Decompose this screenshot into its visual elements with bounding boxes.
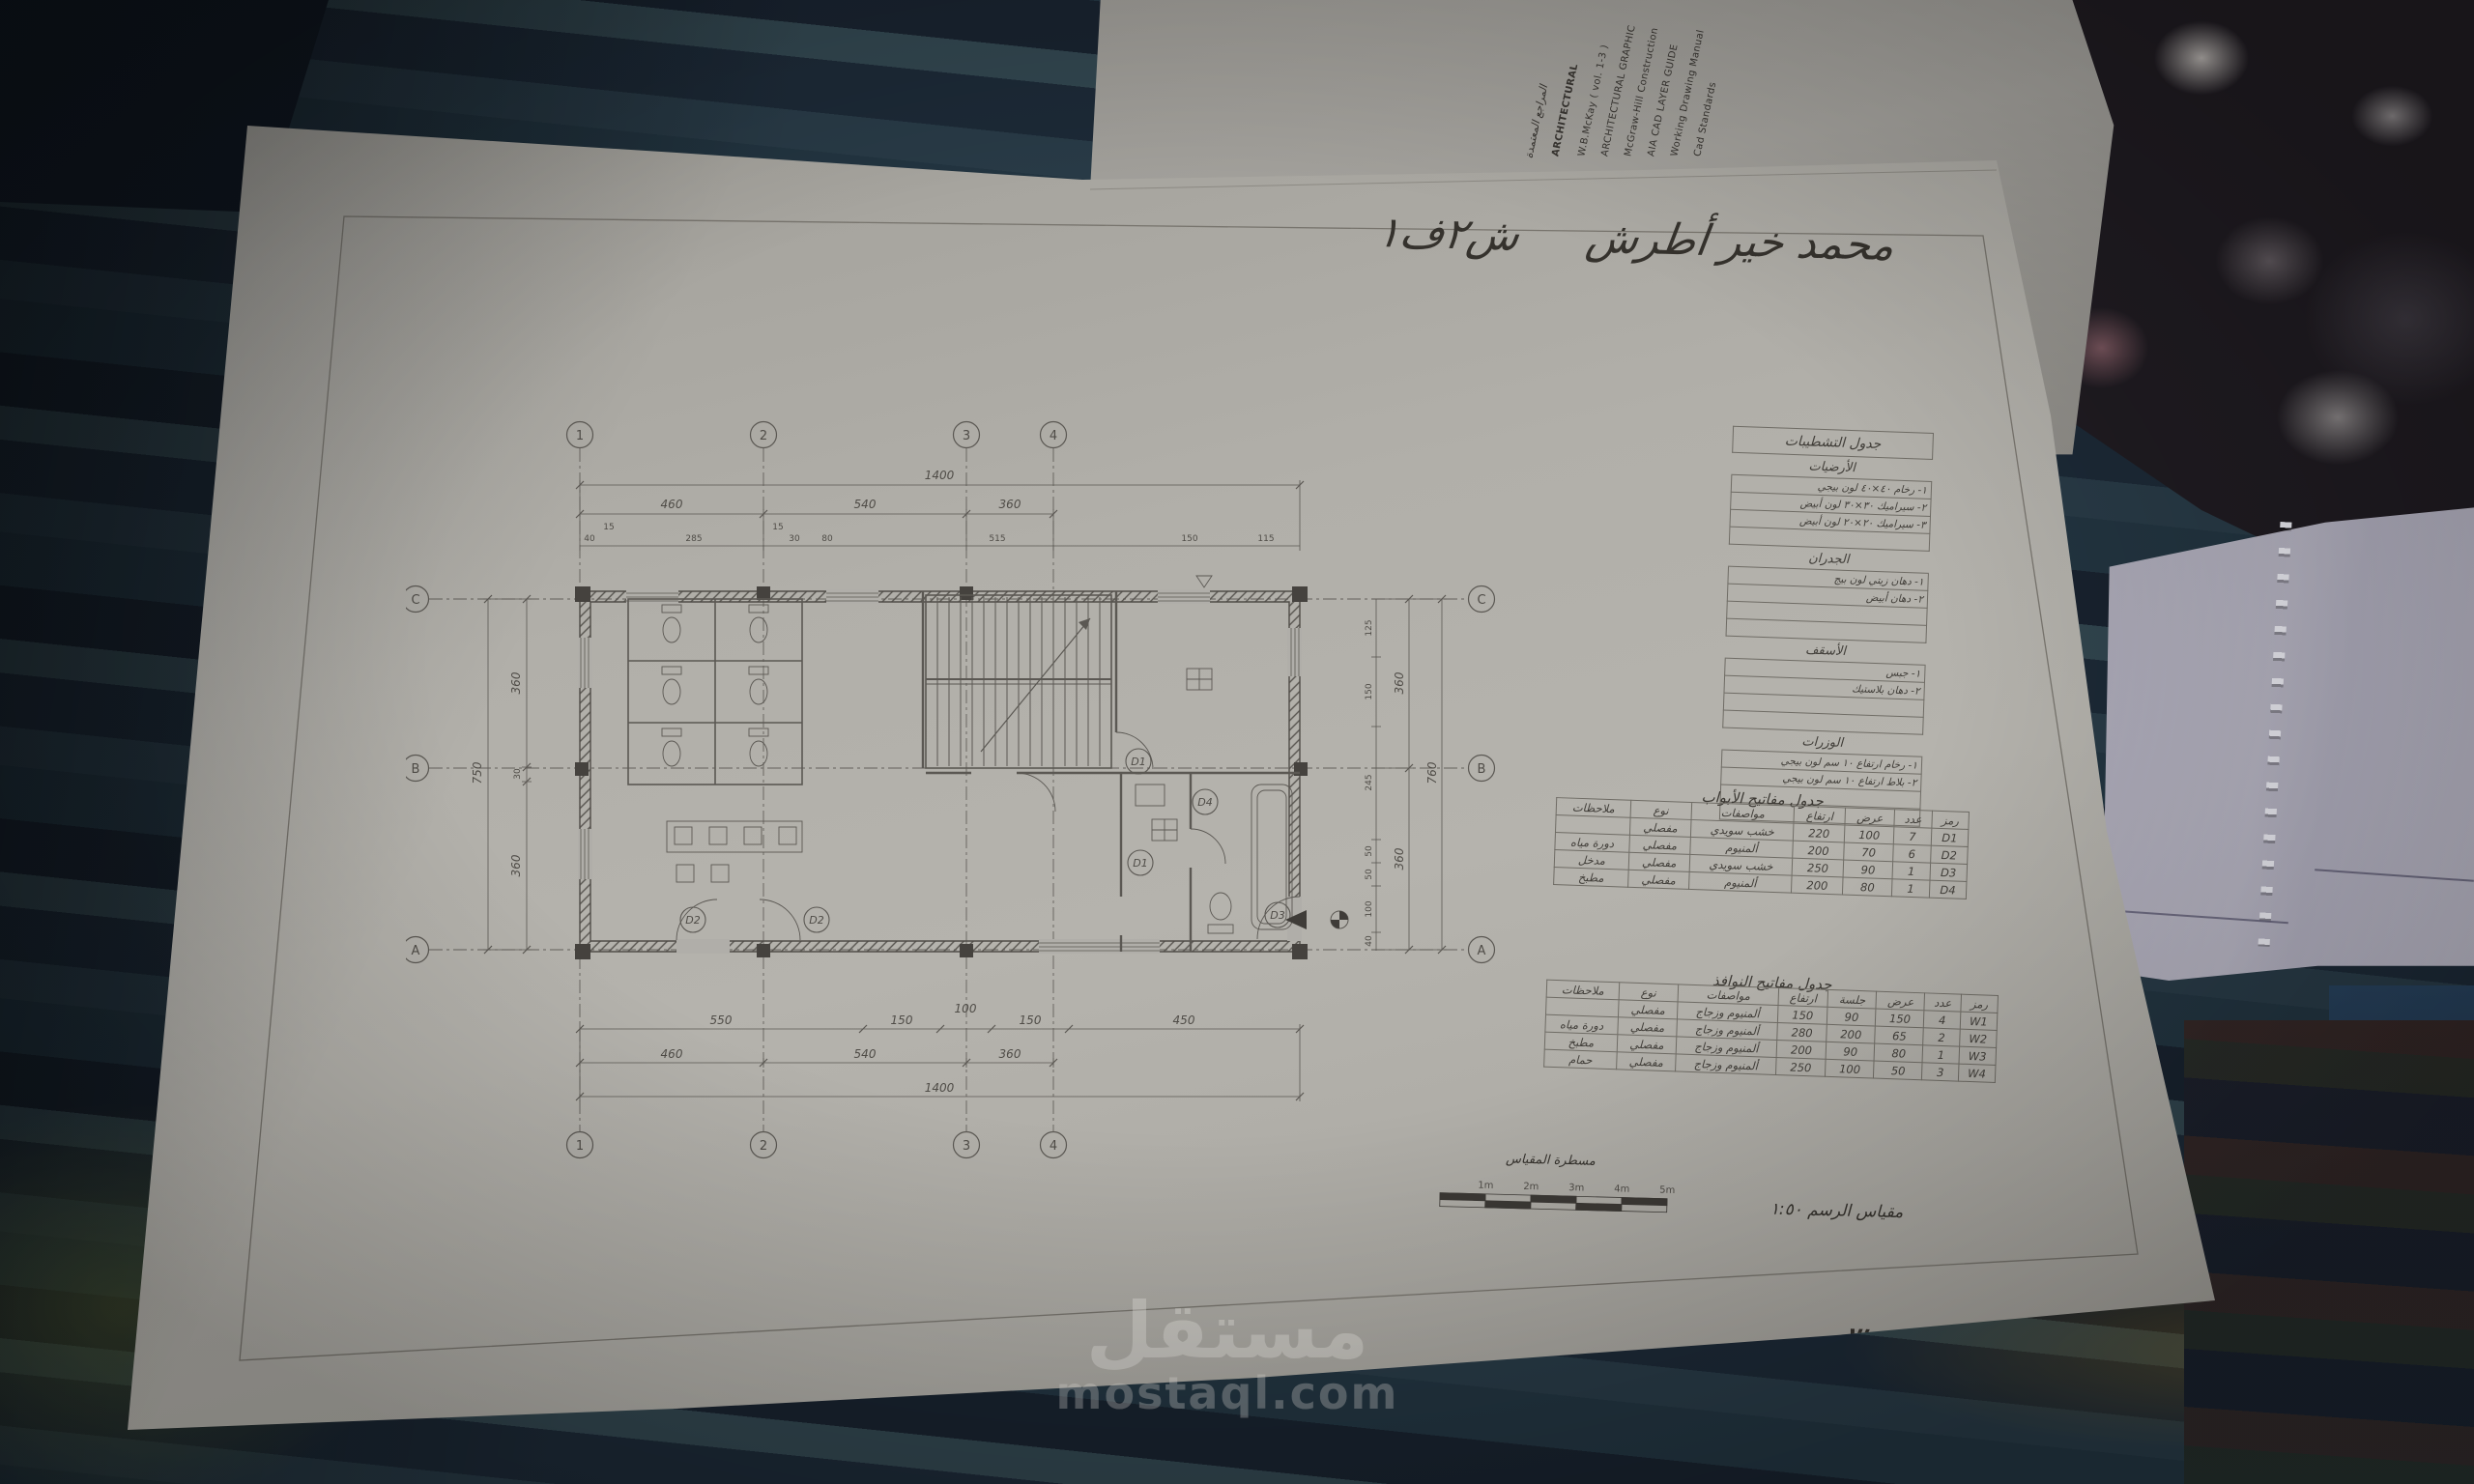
cell: مفصلي [1618, 1017, 1678, 1037]
cell: W2 [1959, 1029, 1997, 1047]
class-code: ش٢ف١ [1374, 208, 1522, 261]
exercise-label: تمرين ٣ [1838, 1317, 1978, 1369]
references-line: Cad Standards [1692, 81, 1718, 157]
svg-text:125: 125 [1365, 619, 1374, 636]
cell: 90 [1827, 1007, 1877, 1026]
svg-text:5m: 5m [1659, 1185, 1675, 1196]
cell: 1 [1892, 879, 1930, 898]
col-header: عرض [1845, 808, 1895, 827]
svg-text:D4: D4 [1197, 796, 1212, 809]
notebook-ruled-line [2114, 910, 2288, 925]
cell: 6 [1893, 844, 1931, 863]
plaid-fabric [2184, 1020, 2474, 1484]
wc-cubicles [628, 599, 802, 785]
svg-text:460: 460 [661, 498, 683, 511]
cell: 200 [1827, 1024, 1876, 1043]
window-openings [578, 589, 1302, 954]
svg-text:B: B [1478, 762, 1486, 777]
svg-text:D3: D3 [1270, 909, 1284, 922]
svg-text:360: 360 [509, 854, 523, 876]
svg-text:3m: 3m [1568, 1183, 1584, 1193]
cell: مفصلي [1629, 835, 1691, 854]
door-marks [680, 749, 1290, 932]
cell: مفصلي [1617, 1035, 1677, 1054]
references-line: المراجع المعتمدة [1522, 84, 1550, 159]
cell: 150 [1777, 1006, 1827, 1025]
svg-text:D2: D2 [809, 914, 823, 927]
svg-text:360: 360 [509, 671, 523, 694]
svg-text:4: 4 [1050, 429, 1057, 443]
cell: مفصلي [1627, 870, 1689, 889]
spiral-binding [2258, 522, 2291, 947]
svg-text:2m: 2m [1523, 1182, 1539, 1192]
svg-text:1400: 1400 [925, 469, 955, 482]
svg-text:540: 540 [854, 1047, 877, 1061]
svg-text:80: 80 [821, 534, 833, 544]
svg-text:3: 3 [963, 1139, 970, 1154]
author-name: محمد خير أطرش [1583, 214, 1897, 271]
svg-text:540: 540 [854, 498, 877, 511]
svg-text:1400: 1400 [925, 1081, 955, 1095]
grid-bubbles [406, 422, 1495, 1158]
cell: مفصلي [1629, 817, 1691, 837]
spiral-notebook [2102, 488, 2474, 981]
cell: 280 [1777, 1023, 1827, 1042]
col-header: رمز [1931, 811, 1969, 829]
cell: 200 [1793, 841, 1844, 860]
svg-text:245: 245 [1365, 774, 1374, 790]
svg-text:515: 515 [989, 534, 1005, 544]
svg-text:150: 150 [1181, 534, 1197, 544]
cell: مفصلي [1616, 1052, 1676, 1071]
svg-text:4: 4 [1050, 1139, 1057, 1154]
cell: 90 [1826, 1042, 1875, 1061]
svg-text:460: 460 [661, 1047, 683, 1061]
cell: W3 [1959, 1046, 1997, 1065]
cell: 150 [1876, 1009, 1925, 1028]
cell: 220 [1794, 823, 1845, 842]
cell: 50 [1874, 1061, 1923, 1080]
floor-plan: 12 34 12 34 CBA CBA 1400 460 540 360 40 … [406, 406, 1527, 1179]
cell: مطبخ [1554, 868, 1628, 888]
svg-text:2: 2 [760, 429, 767, 443]
svg-text:550: 550 [710, 1013, 733, 1027]
svg-text:760: 760 [1425, 761, 1439, 784]
svg-text:40: 40 [1365, 935, 1374, 947]
svg-text:750: 750 [471, 761, 484, 784]
svg-text:360: 360 [1393, 671, 1406, 694]
col-header: جلسة [1827, 989, 1877, 1009]
svg-text:15: 15 [603, 523, 614, 532]
svg-text:40: 40 [584, 534, 595, 544]
cell: D2 [1930, 845, 1968, 864]
notebook-ruled-line [2315, 869, 2474, 882]
references-line: ARCHITECTURAL [1550, 63, 1580, 157]
finishes-table: جدول التشطيبات الأرضيات ١- رخام ٤٠×٤٠ لو… [1719, 426, 1934, 827]
svg-text:D1: D1 [1131, 756, 1145, 768]
svg-text:50: 50 [1365, 869, 1374, 880]
svg-text:D1: D1 [1133, 857, 1147, 870]
cell: حمام [1544, 1049, 1617, 1070]
door-mark-labels: D2 D2 D1 D1 D4 D3 [685, 756, 1284, 927]
cell: W4 [1958, 1064, 1996, 1082]
svg-text:450: 450 [1173, 1013, 1195, 1027]
svg-text:2: 2 [760, 1139, 767, 1154]
svg-text:15: 15 [772, 523, 783, 532]
windows-table: رمز عدد عرض جلسة ارتفاع مواصفات نوع ملاح… [1543, 980, 1999, 1083]
svg-text:30: 30 [513, 768, 523, 780]
svg-text:30: 30 [789, 534, 800, 544]
col-header: نوع [1619, 983, 1679, 1002]
svg-text:D2: D2 [685, 914, 700, 927]
svg-text:150: 150 [891, 1013, 913, 1027]
col-header: ارتفاع [1794, 806, 1845, 825]
cell: ألمنيوم وزجاج [1676, 1054, 1776, 1075]
graphic-scale: مسطرة المقياس 1m 2m 3m 4m 5m [1412, 1150, 2013, 1252]
cell: 200 [1792, 875, 1843, 895]
cell: 80 [1875, 1043, 1924, 1063]
svg-text:360: 360 [999, 498, 1021, 511]
scale-text: مقياس الرسم ١:٥٠ [1770, 1200, 1904, 1223]
cell: 1 [1892, 862, 1930, 880]
svg-text:1m: 1m [1478, 1181, 1493, 1191]
col-header: عدد [1894, 810, 1932, 828]
cell: D4 [1929, 880, 1967, 899]
svg-text:100: 100 [955, 1002, 977, 1015]
svg-text:150: 150 [1020, 1013, 1042, 1027]
windows-table-block: جدول مفاتيح النوافذ [1546, 966, 1999, 982]
cell: 2 [1923, 1028, 1960, 1046]
cell: 100 [1844, 825, 1894, 844]
col-header: عرض [1876, 991, 1925, 1011]
author-note: محمد خير أطرش ش٢ف١ [1374, 208, 1898, 271]
cell: 3 [1922, 1063, 1959, 1081]
cell: 65 [1875, 1026, 1924, 1045]
svg-text:50: 50 [1365, 845, 1374, 857]
svg-text:C: C [411, 593, 419, 608]
cell: D1 [1931, 828, 1969, 846]
cell: 200 [1776, 1041, 1827, 1060]
photo-of-drawing-sheet: المراجع المعتمدة ARCHITECTURAL W.B.McKay… [0, 0, 2474, 1484]
col-header: نوع [1630, 800, 1692, 819]
cell: D3 [1930, 863, 1968, 881]
blue-fabric-fold [2329, 985, 2474, 1484]
cell: W1 [1960, 1012, 1998, 1030]
scale-bar: 1m 2m 3m 4m 5m [1412, 1169, 1762, 1245]
svg-text:100: 100 [1365, 900, 1374, 917]
cell: 250 [1775, 1058, 1826, 1077]
exterior-walls [580, 591, 1300, 952]
cell: 4 [1924, 1011, 1961, 1029]
col-header: عدد [1924, 993, 1961, 1012]
bathroom-fixtures [1136, 785, 1292, 933]
svg-text:360: 360 [1393, 847, 1406, 870]
cell: مفصلي [1618, 1000, 1678, 1019]
cell: 80 [1842, 877, 1892, 897]
cell: 70 [1844, 842, 1894, 862]
cell: 1 [1922, 1045, 1959, 1064]
doors-table: رمز عدد عرض ارتفاع مواصفات نوع ملاحظات D… [1553, 797, 1970, 899]
svg-text:360: 360 [999, 1047, 1021, 1061]
scale-ruler-label: مسطرة المقياس [1506, 1152, 1596, 1168]
svg-text:A: A [412, 944, 420, 958]
cell: 90 [1843, 860, 1893, 879]
svg-text:C: C [1477, 593, 1485, 608]
svg-text:4m: 4m [1614, 1184, 1629, 1194]
col-header: ارتفاع [1778, 988, 1828, 1008]
wash-basins [667, 821, 802, 882]
svg-text:115: 115 [1257, 534, 1274, 544]
svg-text:A: A [1478, 944, 1486, 958]
cell: ألمنيوم [1688, 871, 1792, 893]
col-header: رمز [1961, 994, 1999, 1013]
drawing-sheet: محمد خير أطرش ش٢ف١ [0, 0, 2474, 1484]
svg-text:1: 1 [576, 1139, 584, 1154]
staircase [926, 595, 1111, 768]
cell: 100 [1826, 1059, 1875, 1078]
cell: 250 [1792, 858, 1843, 877]
svg-text:150: 150 [1365, 683, 1374, 699]
svg-text:B: B [412, 762, 420, 777]
svg-text:1: 1 [576, 429, 584, 443]
grid-labels: 12 34 12 34 CBA CBA [411, 429, 1485, 1154]
door-arcs [676, 732, 1300, 940]
svg-text:3: 3 [963, 429, 970, 443]
cell: 7 [1894, 827, 1932, 845]
cell: مفصلي [1628, 852, 1690, 871]
svg-text:285: 285 [685, 534, 702, 544]
